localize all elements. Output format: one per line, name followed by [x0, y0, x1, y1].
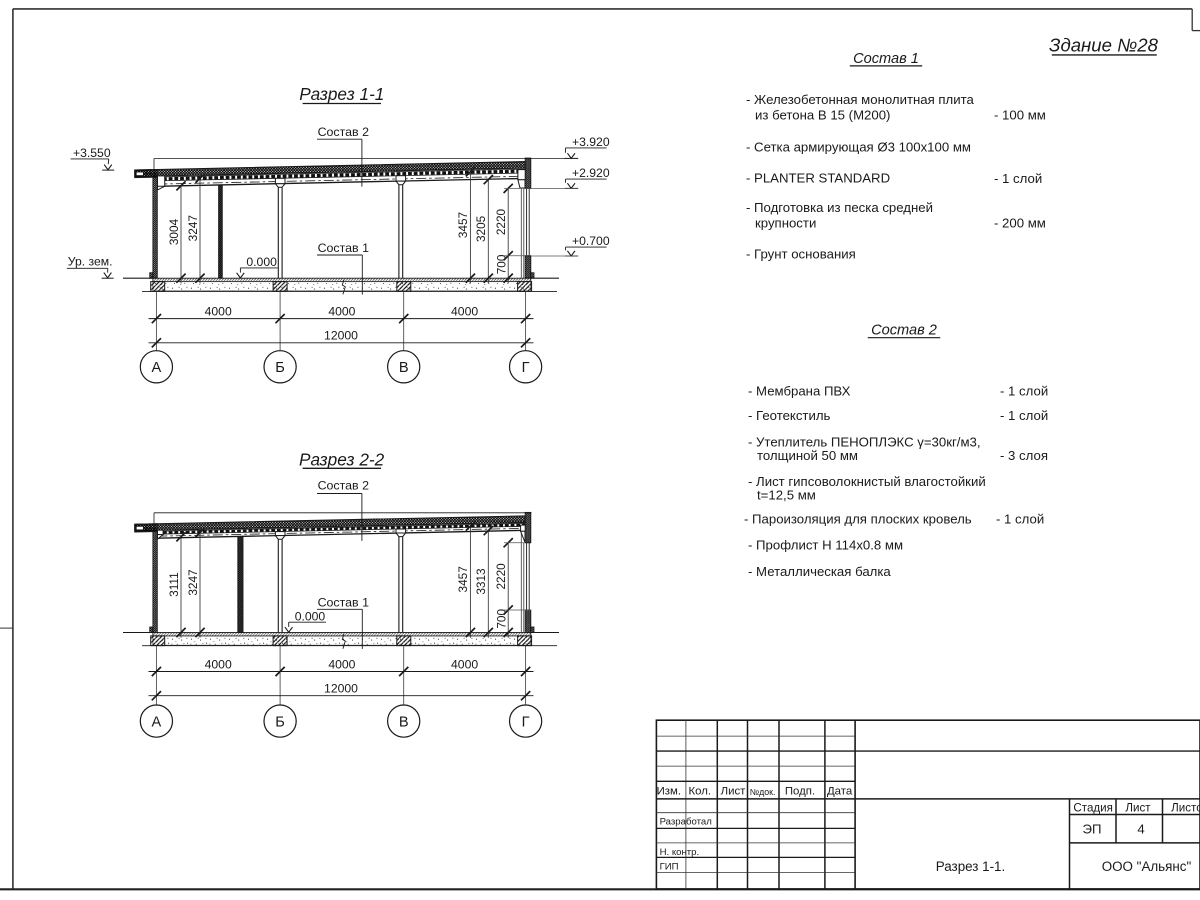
svg-text:- 1 слой: - 1 слой — [1000, 383, 1048, 398]
svg-text:А: А — [152, 714, 162, 730]
svg-text:3247: 3247 — [186, 215, 200, 241]
svg-text:3313: 3313 — [474, 568, 488, 595]
svg-text:- Профлист Н 114х0.8 мм: - Профлист Н 114х0.8 мм — [748, 537, 903, 552]
svg-text:- PLANTER STANDARD: - PLANTER STANDARD — [746, 170, 890, 185]
svg-text:12000: 12000 — [324, 329, 358, 343]
svg-text:4: 4 — [1137, 822, 1144, 837]
svg-text:№док.: №док. — [750, 787, 776, 797]
svg-text:700: 700 — [495, 609, 509, 629]
svg-text:3457: 3457 — [456, 566, 470, 592]
svg-text:4000: 4000 — [451, 304, 478, 318]
svg-text:+0.700: +0.700 — [572, 234, 610, 248]
svg-text:ГИП: ГИП — [660, 861, 679, 872]
svg-text:Состав 1: Состав 1 — [318, 241, 369, 255]
svg-text:Б: Б — [275, 714, 285, 730]
svg-text:Дата: Дата — [827, 785, 853, 797]
svg-text:Состав 1: Состав 1 — [853, 51, 919, 67]
svg-text:Г: Г — [522, 714, 530, 730]
svg-text:Состав 2: Состав 2 — [318, 125, 369, 139]
svg-text:Н. контр.: Н. контр. — [660, 847, 700, 858]
svg-text:Здание №28: Здание №28 — [1049, 35, 1159, 56]
svg-text:Разрез 1-1.: Разрез 1-1. — [936, 859, 1005, 874]
svg-text:4000: 4000 — [205, 657, 232, 671]
svg-text:0.000: 0.000 — [246, 255, 277, 269]
svg-text:Состав 1: Состав 1 — [318, 596, 369, 610]
svg-text:Лист: Лист — [1125, 802, 1151, 815]
svg-text:- 200 мм: - 200 мм — [994, 216, 1046, 231]
svg-text:3457: 3457 — [456, 212, 470, 238]
svg-text:- Железобетонная монолитная п: - Железобетонная монолитная плита — [746, 92, 975, 107]
svg-text:3004: 3004 — [167, 218, 181, 245]
svg-text:- Подготовка из песка средней: - Подготовка из песка средней — [746, 200, 933, 215]
svg-text:Изм.: Изм. — [657, 785, 681, 797]
svg-text:Г: Г — [522, 360, 530, 376]
svg-text:Кол.: Кол. — [689, 785, 712, 797]
svg-text:+2.920: +2.920 — [572, 166, 610, 180]
svg-text:- Геотекстиль: - Геотекстиль — [748, 408, 831, 423]
svg-text:- 1 слой: - 1 слой — [996, 511, 1044, 526]
svg-text:- 1 слой: - 1 слой — [994, 171, 1042, 186]
svg-text:Стадия: Стадия — [1073, 802, 1113, 815]
svg-text:4000: 4000 — [451, 657, 478, 671]
svg-text:Ур. зем.: Ур. зем. — [68, 255, 113, 269]
svg-text:из бетона В 15 (М200): из бетона В 15 (М200) — [755, 107, 890, 122]
svg-text:12000: 12000 — [324, 682, 358, 696]
svg-text:2220: 2220 — [494, 563, 508, 590]
svg-text:Подп.: Подп. — [785, 785, 815, 797]
svg-text:+3.920: +3.920 — [572, 135, 610, 149]
svg-text:+3.550: +3.550 — [73, 146, 111, 160]
svg-text:- 1 слой: - 1 слой — [1000, 408, 1048, 423]
svg-text:ООО "Альянс": ООО "Альянс" — [1102, 859, 1192, 874]
svg-text:- 100 мм: - 100 мм — [994, 107, 1046, 122]
svg-text:Разрез 2-2: Разрез 2-2 — [299, 450, 385, 470]
svg-text:- Сетка армирующая Ø3 100х100: - Сетка армирующая Ø3 100х100 мм — [746, 139, 971, 154]
svg-text:3247: 3247 — [186, 569, 200, 595]
svg-text:4000: 4000 — [328, 304, 355, 318]
svg-text:толщиной 50 мм: толщиной 50 мм — [757, 448, 858, 463]
svg-text:4000: 4000 — [205, 304, 232, 318]
svg-text:Разрез 1-1: Разрез 1-1 — [299, 84, 384, 104]
svg-text:В: В — [399, 714, 409, 730]
svg-text:Состав 2: Состав 2 — [871, 323, 937, 339]
svg-text:- 3 слоя: - 3 слоя — [1000, 448, 1048, 463]
svg-text:Листов: Листов — [1171, 802, 1200, 815]
svg-text:- Пароизоляция для плоских кро: - Пароизоляция для плоских кровель — [744, 511, 972, 526]
svg-text:3111: 3111 — [167, 572, 181, 597]
svg-text:Лист: Лист — [721, 785, 747, 797]
svg-text:В: В — [399, 360, 409, 376]
svg-text:4000: 4000 — [328, 657, 355, 671]
svg-text:- Металлическая балка: - Металлическая балка — [748, 564, 891, 579]
svg-text:0.000: 0.000 — [295, 610, 326, 624]
svg-text:А: А — [152, 360, 162, 376]
svg-text:крупности: крупности — [755, 216, 816, 231]
svg-text:700: 700 — [495, 254, 509, 274]
svg-text:t=12,5 мм: t=12,5 мм — [757, 487, 816, 502]
svg-text:Б: Б — [275, 360, 285, 376]
svg-text:ЭП: ЭП — [1083, 822, 1102, 837]
svg-text:- Грунт основания: - Грунт основания — [746, 246, 856, 261]
svg-text:Состав 2: Состав 2 — [318, 479, 369, 493]
svg-text:3205: 3205 — [474, 215, 488, 242]
svg-text:- Мембрана ПВХ: - Мембрана ПВХ — [748, 383, 851, 398]
svg-text:Разработал: Разработал — [660, 817, 712, 828]
svg-text:2220: 2220 — [494, 208, 508, 235]
